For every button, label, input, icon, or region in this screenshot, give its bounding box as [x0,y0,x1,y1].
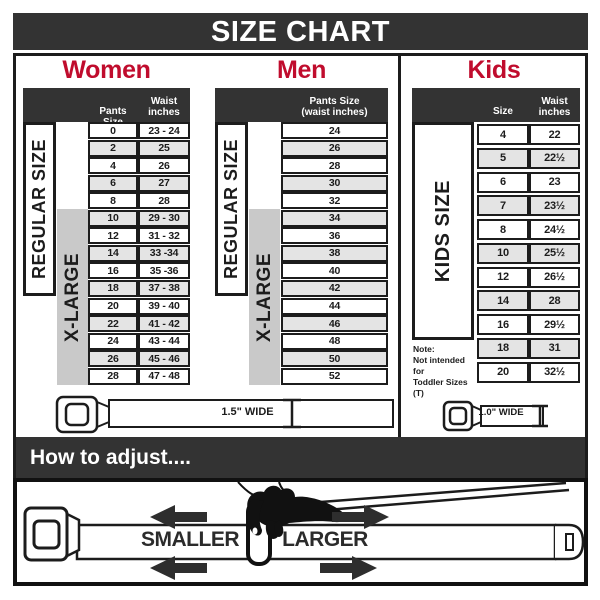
women-size-cell: 4 [88,157,138,174]
kids-waist-cell: 23½ [529,195,580,216]
kids-waist-cell: 24½ [529,219,580,240]
women-waist-cell: 47 - 48 [138,368,190,385]
men-waist-cell: 42 [281,280,388,297]
belt-buckle-slot [34,521,59,548]
men-waist-cell: 40 [281,262,388,279]
kids-size-label: KIDS SIZE [412,122,474,340]
women-size-cell: 16 [88,262,138,279]
women-waist-cell: 45 - 46 [138,350,190,367]
women-waist-cell: 43 - 44 [138,333,190,350]
men-waist-cell: 34 [281,210,388,227]
kids-size-cell: 10 [477,243,529,264]
size-chart-infographic: SIZE CHART Women Men Kids Pants Size Wai… [0,0,600,600]
men-waist-cell: 30 [281,175,388,192]
kids-size-header: Size [477,106,529,117]
kids-waist-cell: 28 [529,290,580,311]
women-size-cell: 26 [88,350,138,367]
page-title: SIZE CHART [13,13,588,50]
belt-tip-slot [566,534,573,550]
women-size-cell: 14 [88,245,138,262]
women-size-cell: 18 [88,280,138,297]
women-size-cell: 10 [88,210,138,227]
women-waist-cell: 29 - 30 [138,210,190,227]
men-waist-cell: 50 [281,350,388,367]
kids-size-cell: 18 [477,338,529,359]
kids-size-cell: 6 [477,172,529,193]
kids-size-cell: 5 [477,148,529,169]
women-size-cell: 22 [88,315,138,332]
kids-waist-cell: 26½ [529,267,580,288]
men-waist-cell: 52 [281,368,388,385]
men-waist-cell: 32 [281,192,388,209]
kids-waist-cell: 29½ [529,314,580,335]
buckle-tongue [97,402,109,427]
kids-heading: Kids [400,56,588,85]
women-size-cell: 28 [88,368,138,385]
women-xlarge-label: X-LARGE [57,209,88,385]
women-waist-cell: 37 - 38 [138,280,190,297]
men-waist-cell: 48 [281,333,388,350]
men-regular-size-label: REGULAR SIZE [215,122,248,296]
women-waist-cell: 31 - 32 [138,227,190,244]
kids-waist-cell: 22½ [529,148,580,169]
men-waist-cell: 46 [281,315,388,332]
men-waist-cell: 26 [281,140,388,157]
kids-size-cell: 14 [477,290,529,311]
kids-waist-cell: 31 [529,338,580,359]
men-waist-cell: 36 [281,227,388,244]
womens-mens-belt-width-label: 1.5" WIDE [205,406,290,418]
women-waist-cell: 26 [138,157,190,174]
kids-size-cell: 7 [477,195,529,216]
women-waist-cell: 41 - 42 [138,315,190,332]
women-size-cell: 20 [88,298,138,315]
belt-buckle-slot [66,404,88,425]
women-waist-header: Waist inches [138,96,190,118]
kids-size-cell: 20 [477,362,529,383]
kids-size-cell: 8 [477,219,529,240]
women-waist-cell: 33 -34 [138,245,190,262]
men-waist-cell: 38 [281,245,388,262]
women-regular-size-label: REGULAR SIZE [23,122,56,296]
women-waist-cell: 28 [138,192,190,209]
kids-size-cell: 4 [477,124,529,145]
women-size-cell: 8 [88,192,138,209]
men-waist-cell: 44 [281,298,388,315]
men-kids-divider [398,56,401,437]
buckle-tongue [67,514,79,556]
men-waist-cell: 28 [281,157,388,174]
women-waist-cell: 25 [138,140,190,157]
men-xlarge-label: X-LARGE [249,209,280,385]
men-pants-size-header: Pants Size (waist inches) [281,96,388,118]
kids-waist-header: Waist inches [529,96,580,118]
women-heading: Women [23,56,190,85]
men-waist-cell: 24 [281,122,388,139]
larger-label: LARGER [280,528,370,552]
men-heading: Men [215,56,388,85]
women-size-cell: 24 [88,333,138,350]
kids-belt-width-label: 1.0" WIDE [470,407,532,418]
kids-size-cell: 16 [477,314,529,335]
women-waist-cell: 27 [138,175,190,192]
kids-note: Note: Not intended for Toddler Sizes (T) [413,344,477,399]
kids-waist-cell: 22 [529,124,580,145]
women-size-cell: 2 [88,140,138,157]
women-waist-cell: 23 - 24 [138,122,190,139]
women-waist-cell: 39 - 40 [138,298,190,315]
women-size-cell: 0 [88,122,138,139]
how-to-adjust-heading: How to adjust.... [16,437,585,478]
belt-buckle-slot [450,408,466,424]
women-waist-cell: 35 -36 [138,262,190,279]
kids-waist-cell: 32½ [529,362,580,383]
women-size-cell: 6 [88,175,138,192]
kids-size-cell: 12 [477,267,529,288]
women-size-cell: 12 [88,227,138,244]
kids-waist-cell: 23 [529,172,580,193]
kids-waist-cell: 25½ [529,243,580,264]
smaller-label: SMALLER [140,528,240,552]
